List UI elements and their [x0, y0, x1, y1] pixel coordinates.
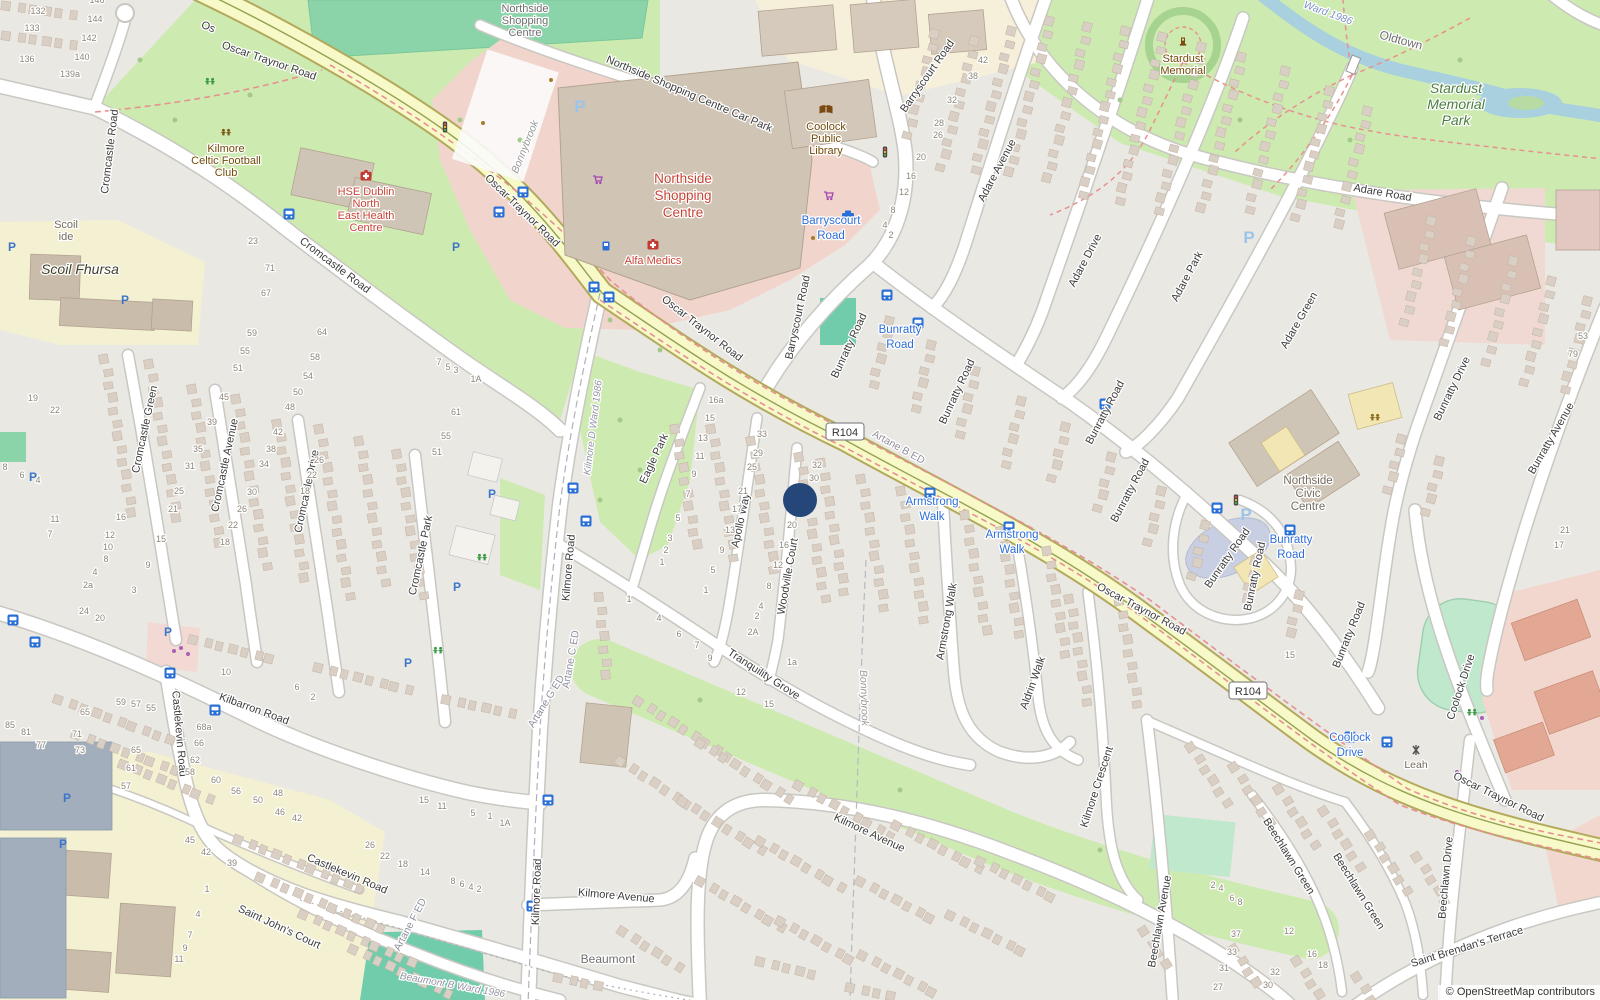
house-number: 140: [74, 52, 89, 62]
svg-text:R104: R104: [832, 427, 858, 439]
house-number: 4: [92, 567, 97, 577]
house-number: 21: [738, 486, 748, 496]
house-number: 4: [882, 220, 887, 230]
svg-text:P: P: [488, 487, 496, 501]
bus-stop-icon: [518, 187, 529, 198]
poi-node-icon: [549, 78, 553, 82]
house-number: 15: [705, 413, 715, 423]
house-number: 1A: [499, 818, 510, 828]
house-number: 26: [237, 504, 247, 514]
house-number: 3: [131, 585, 136, 595]
poi-label: Memorial: [1427, 96, 1485, 112]
traffic-signals-icon: [883, 147, 887, 158]
house-number: 65: [80, 707, 90, 717]
house-number: 25: [174, 486, 184, 496]
house-number: 18: [220, 537, 230, 547]
house-number: 4: [758, 601, 763, 611]
house-number: 11: [437, 801, 446, 811]
car-park-icon: P: [574, 97, 585, 116]
house-number: 1: [204, 884, 209, 894]
house-number: 42: [978, 55, 988, 65]
house-number: 3: [453, 365, 458, 375]
house-number: 4: [35, 475, 40, 485]
house-number: 5: [675, 513, 680, 523]
house-number: 5: [445, 362, 450, 372]
transit-stop-label: Walk: [999, 544, 1024, 556]
svg-text:P: P: [452, 240, 460, 254]
house-number: 5: [470, 808, 475, 818]
house-number: 2: [888, 230, 893, 240]
poi-label: Park: [1442, 112, 1472, 128]
house-number: 8: [103, 554, 108, 564]
poi-label: Stardust: [1163, 53, 1204, 65]
poi-label: Centre: [1291, 501, 1326, 513]
house-number: 77: [36, 740, 46, 750]
transit-stop-label: Walk: [919, 511, 944, 523]
poi-label: Leah: [1404, 759, 1428, 771]
transit-stop-label: Barryscourt: [802, 215, 862, 227]
house-number: 144: [87, 14, 102, 24]
house-number: 60: [211, 775, 221, 785]
house-number: 8: [766, 581, 771, 591]
house-number: 16: [779, 540, 789, 550]
house-number: 19: [28, 393, 38, 403]
car-park-icon: P: [1240, 505, 1251, 524]
house-number: 12: [736, 687, 746, 697]
svg-text:P: P: [63, 791, 71, 805]
house-number: 20: [95, 613, 105, 623]
map-attribution[interactable]: © OpenStreetMap contributors: [1438, 985, 1600, 1000]
house-number: 24: [79, 606, 89, 616]
house-number: 27: [1213, 982, 1223, 992]
parking-icon: P: [59, 837, 67, 851]
svg-text:P: P: [1243, 228, 1254, 247]
house-number: 1: [626, 594, 631, 604]
house-number: 9: [145, 560, 150, 570]
poi-label: Beaumont: [581, 952, 636, 966]
house-number: 12: [1284, 926, 1294, 936]
poi-label: Scoil: [54, 219, 78, 231]
bus-stop-icon: [284, 209, 295, 220]
map-canvas[interactable]: PPPPPPPPPPPPPOsOscar Traynor RoadOscar T…: [0, 0, 1600, 1000]
poi-node-icon: [811, 236, 815, 240]
house-number: 9: [719, 545, 724, 555]
house-number: 29: [753, 448, 763, 458]
house-number: 48: [273, 788, 283, 798]
house-number: 34: [259, 459, 269, 469]
shop-node-icon: [179, 646, 183, 650]
house-number: 59: [247, 328, 257, 338]
poi-label: Memorial: [1160, 65, 1205, 77]
svg-text:P: P: [1240, 505, 1251, 524]
house-number: 7: [694, 640, 699, 650]
house-number: 37: [1231, 929, 1241, 939]
house-number: 8: [450, 876, 455, 886]
house-number: 9: [707, 653, 712, 663]
house-number: 71: [265, 263, 275, 273]
house-number: 16: [116, 512, 126, 522]
house-number: 15: [764, 699, 774, 709]
house-number: 132: [30, 6, 45, 16]
poi-label: Centre: [349, 222, 382, 234]
bus-stop-icon: [210, 705, 221, 716]
house-number: 11: [174, 954, 183, 964]
poi-label: Alfa Medics: [625, 255, 682, 267]
house-number: 18: [1318, 960, 1328, 970]
house-number: 133: [24, 23, 39, 33]
house-number: 4: [195, 909, 200, 919]
house-number: 20: [916, 152, 926, 162]
bus-stop-icon: [543, 795, 554, 806]
transit-stop-label: Coolock: [1329, 732, 1371, 744]
house-number: 32: [1270, 967, 1280, 977]
transit-stop-label: Armstrong: [985, 529, 1038, 541]
poi-label: Scoil Fhursa: [41, 261, 119, 277]
parking-icon: P: [488, 487, 496, 501]
house-number: 8: [1237, 897, 1242, 907]
transit-stop-label: Bunratty: [879, 324, 922, 336]
house-number: 26: [933, 130, 943, 140]
poi-label: Northside: [1283, 475, 1332, 487]
svg-text:R104: R104: [1235, 686, 1261, 698]
parking-icon: P: [404, 656, 412, 670]
bus-stop-icon: [581, 516, 592, 527]
poi-label: Civic: [1296, 488, 1321, 500]
svg-text:P: P: [404, 656, 412, 670]
house-number: 58: [185, 767, 195, 777]
house-number: 6: [1229, 893, 1234, 903]
house-number: 139a: [60, 69, 80, 79]
house-number: 65: [131, 745, 141, 755]
bus-stop-icon: [1382, 737, 1393, 748]
bus-stop-icon: [589, 282, 600, 293]
house-number: 21: [1560, 525, 1570, 535]
poi-label: Coolock: [806, 121, 846, 133]
house-number: 1: [487, 811, 492, 821]
house-number: 85: [5, 720, 15, 730]
house-number: 146: [89, 0, 104, 5]
house-number: 31: [1219, 963, 1229, 973]
house-number: 30: [809, 473, 819, 483]
house-number: 11: [695, 451, 704, 461]
house-number: 20: [787, 520, 797, 530]
svg-text:P: P: [574, 97, 585, 116]
house-number: 6: [459, 879, 464, 889]
poi-label: Library: [809, 145, 843, 157]
house-number: 2: [310, 692, 315, 702]
traffic-signals-icon: [1234, 495, 1238, 506]
house-number: 51: [233, 363, 243, 373]
house-number: 61: [451, 407, 461, 417]
parking-icon: P: [8, 240, 16, 254]
svg-text:P: P: [164, 625, 172, 639]
house-number: 5: [710, 565, 715, 575]
house-number: 57: [131, 699, 141, 709]
house-number: 64: [317, 327, 327, 337]
house-number: 58: [310, 352, 320, 362]
house-number: 33: [757, 429, 767, 439]
house-number: 3: [667, 533, 672, 543]
house-number: 32: [947, 95, 957, 105]
house-number: 6: [294, 682, 299, 692]
poi-label: Centre: [663, 205, 704, 220]
traffic-signals-icon: [443, 122, 447, 133]
house-number: 10: [103, 542, 113, 552]
house-number: 71: [72, 729, 82, 739]
house-number: 2: [663, 545, 668, 555]
house-number: 46: [275, 807, 285, 817]
house-number: 66: [194, 738, 204, 748]
poi-label: North: [353, 198, 380, 210]
transit-stop-label: Road: [1277, 549, 1305, 561]
house-number: 23: [248, 236, 258, 246]
house-number: 7: [436, 357, 441, 367]
map-svg: PPPPPPPPPPPPPOsOscar Traynor RoadOscar T…: [0, 0, 1600, 1000]
house-number: 12: [773, 560, 783, 570]
house-number: 39: [207, 417, 217, 427]
house-number: 17: [1554, 540, 1564, 550]
poi-label: Public: [811, 133, 841, 145]
fuel-icon: [603, 242, 610, 251]
house-number: 68a: [196, 722, 211, 732]
bus-stop-icon: [882, 290, 893, 301]
house-number: 1a: [787, 657, 797, 667]
poi-label: Kilmore: [207, 143, 244, 155]
house-number: 2: [1210, 880, 1215, 890]
house-number: 9: [182, 943, 187, 953]
house-number: 12: [105, 530, 115, 540]
house-number: 1: [659, 557, 664, 567]
house-number: 4: [468, 882, 473, 892]
poi-label: HSE Dublin: [338, 186, 395, 198]
house-number: 67: [261, 288, 271, 298]
house-number: 2: [476, 884, 481, 894]
house-number: 15: [419, 795, 429, 805]
house-number: 1A: [470, 374, 481, 384]
house-number: 10: [221, 667, 231, 677]
house-number: 81: [21, 727, 31, 737]
house-number: 56: [231, 786, 241, 796]
bus-stop-icon: [1212, 503, 1223, 514]
house-number: 30: [1263, 980, 1273, 990]
house-number: 136: [19, 54, 34, 64]
svg-text:P: P: [453, 580, 461, 594]
house-number: 42: [201, 847, 211, 857]
house-number: 142: [81, 33, 96, 43]
house-number: 35: [193, 444, 203, 454]
poi-label: Northside: [501, 3, 548, 15]
house-number: 2a: [83, 580, 93, 590]
house-number: 57: [121, 781, 131, 791]
transit-stop-label: Bunratty: [1270, 534, 1313, 546]
house-number: 38: [968, 71, 978, 81]
parking-icon: P: [63, 791, 71, 805]
poi-label: ide: [59, 231, 74, 243]
parking-icon: P: [164, 625, 172, 639]
house-number: 59: [116, 697, 126, 707]
svg-text:P: P: [59, 837, 67, 851]
house-number: 42: [273, 427, 283, 437]
poi-label: Northside: [654, 171, 712, 186]
house-number: 2: [754, 611, 759, 621]
house-number: 55: [441, 431, 451, 441]
house-number: 6: [19, 470, 24, 480]
attribution-text: © OpenStreetMap contributors: [1446, 986, 1595, 998]
house-number: 26: [365, 840, 375, 850]
house-number: 9: [691, 469, 696, 479]
house-number: 50: [293, 387, 303, 397]
poi-node-icon: [481, 121, 485, 125]
house-number: 4: [1218, 883, 1223, 893]
parking-icon: P: [452, 240, 460, 254]
house-number: 7: [187, 930, 192, 940]
bus-stop-icon: [30, 637, 41, 648]
house-number: 17: [732, 504, 742, 514]
house-number: 1: [703, 585, 708, 595]
poi-label: Club: [215, 167, 238, 179]
house-number: 53: [1578, 331, 1588, 341]
house-number: 79: [1568, 349, 1578, 359]
location-marker[interactable]: [783, 483, 817, 517]
poi-label: Stardust: [1430, 80, 1483, 96]
transit-stop-label: Drive: [1337, 747, 1364, 759]
poi-label: East Health: [338, 210, 395, 222]
house-number: 62: [190, 755, 200, 765]
house-number: 22: [380, 851, 390, 861]
transit-stop-label: Road: [886, 339, 914, 351]
bus-stop-icon: [604, 292, 615, 303]
house-number: 22: [307, 470, 317, 480]
house-number: 16: [906, 171, 916, 181]
poi-label: Shopping: [654, 188, 711, 203]
car-park-icon: P: [1243, 228, 1254, 247]
house-number: 22: [228, 520, 238, 530]
route-shield: R104: [1229, 682, 1267, 699]
house-number: 55: [146, 703, 156, 713]
house-number: 33: [1227, 947, 1237, 957]
poi-label: Celtic Football: [191, 155, 261, 167]
parking-icon: P: [453, 580, 461, 594]
poi-label: Shopping: [502, 15, 549, 27]
transit-stop-label: Armstrong: [905, 496, 958, 508]
svg-text:P: P: [121, 293, 129, 307]
house-number: 50: [253, 795, 263, 805]
house-number: 61: [126, 763, 136, 773]
svg-text:P: P: [8, 240, 16, 254]
transit-stop-label: Road: [817, 230, 845, 242]
house-number: 13: [698, 433, 708, 443]
house-number: 26: [314, 455, 324, 465]
bus-stop-icon: [165, 668, 176, 679]
house-number: 18: [398, 859, 408, 869]
shop-node-icon: [186, 652, 190, 656]
house-number: 22: [50, 405, 60, 415]
house-number: 7: [47, 529, 52, 539]
poi-label: Centre: [508, 27, 541, 39]
house-number: 4: [656, 613, 661, 623]
house-number: 8: [890, 205, 895, 215]
house-number: 16: [1307, 949, 1317, 959]
house-number: 28: [934, 118, 944, 128]
shop-node-icon: [1480, 716, 1484, 720]
bus-stop-icon: [494, 207, 505, 218]
route-shield: R104: [826, 423, 864, 440]
house-number: 55: [240, 346, 250, 356]
bus-stop-icon: [8, 615, 19, 626]
street-label: Kilmore Road: [530, 858, 544, 925]
house-number: 15: [156, 534, 166, 544]
shop-node-icon: [172, 649, 176, 653]
boundary-label: Bonnybrook: [857, 670, 871, 727]
house-number: 31: [185, 461, 195, 471]
house-number: 15: [1285, 650, 1295, 660]
house-number: 25: [747, 462, 757, 472]
house-number: 7: [685, 489, 690, 499]
parking-icon: P: [121, 293, 129, 307]
house-number: 11: [50, 514, 59, 524]
house-number: 45: [219, 392, 229, 402]
house-number: 12: [899, 187, 909, 197]
house-number: 14: [420, 867, 430, 877]
house-number: 48: [285, 402, 295, 412]
house-number: 45: [185, 835, 195, 845]
house-number: 54: [303, 371, 313, 381]
house-number: 8: [2, 462, 7, 472]
house-number: 32: [812, 460, 822, 470]
house-number: 16a: [708, 395, 723, 405]
house-number: 38: [266, 444, 276, 454]
house-number: 30: [247, 487, 257, 497]
house-number: 2A: [747, 627, 758, 637]
house-number: 18: [300, 486, 310, 496]
house-number: 73: [75, 745, 85, 755]
house-number: 39: [227, 858, 237, 868]
house-number: 42: [292, 813, 302, 823]
bus-stop-icon: [568, 483, 579, 494]
house-number: 51: [432, 447, 442, 457]
house-number: 6: [676, 629, 681, 639]
house-number: 13: [725, 525, 735, 535]
house-number: 21: [168, 504, 178, 514]
